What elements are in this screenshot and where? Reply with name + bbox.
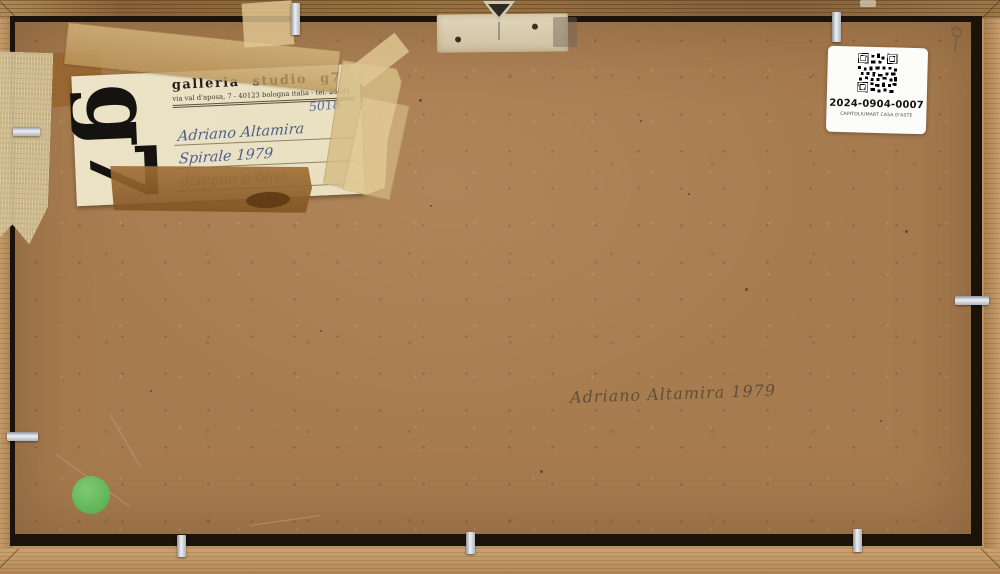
frame-right bbox=[984, 0, 1000, 574]
tape-fragment bbox=[242, 0, 295, 47]
auction-house-name: CAPITOLIUMART CASA D'ASTE bbox=[838, 111, 914, 118]
speck bbox=[540, 470, 543, 473]
metal-clip bbox=[853, 529, 862, 552]
metal-clip bbox=[291, 3, 300, 35]
speck bbox=[688, 193, 690, 195]
packing-tape-strip bbox=[110, 165, 312, 213]
metal-clip bbox=[466, 532, 475, 554]
auction-lot-code: 2024-0904-0007 bbox=[826, 98, 926, 112]
framed-artwork-back: g7 galleria studio g7 via val d'aposa, 7… bbox=[0, 0, 1000, 574]
speck bbox=[745, 288, 748, 291]
green-dot-sticker bbox=[72, 476, 110, 514]
frame-bottom bbox=[0, 548, 1000, 574]
speck bbox=[905, 230, 908, 233]
triangle-hanger-icon bbox=[480, 0, 518, 44]
speck bbox=[880, 420, 882, 422]
qr-code-icon bbox=[856, 51, 899, 94]
metal-clip bbox=[7, 432, 38, 441]
speck bbox=[640, 120, 642, 122]
speck bbox=[419, 99, 422, 102]
metal-clip bbox=[177, 535, 186, 557]
adhesive-residue bbox=[553, 17, 577, 47]
speck bbox=[430, 205, 432, 207]
auction-sticker: 2024-0904-0007 CAPITOLIUMART CASA D'ASTE bbox=[826, 46, 928, 135]
speck bbox=[150, 390, 152, 392]
metal-clip bbox=[13, 127, 40, 136]
pencil-mark bbox=[944, 22, 972, 56]
metal-clip bbox=[832, 12, 841, 42]
nail-hole bbox=[532, 24, 538, 30]
paint-speck bbox=[860, 0, 876, 7]
nail-hole bbox=[455, 36, 461, 42]
speck bbox=[320, 330, 322, 332]
metal-clip bbox=[955, 296, 989, 305]
